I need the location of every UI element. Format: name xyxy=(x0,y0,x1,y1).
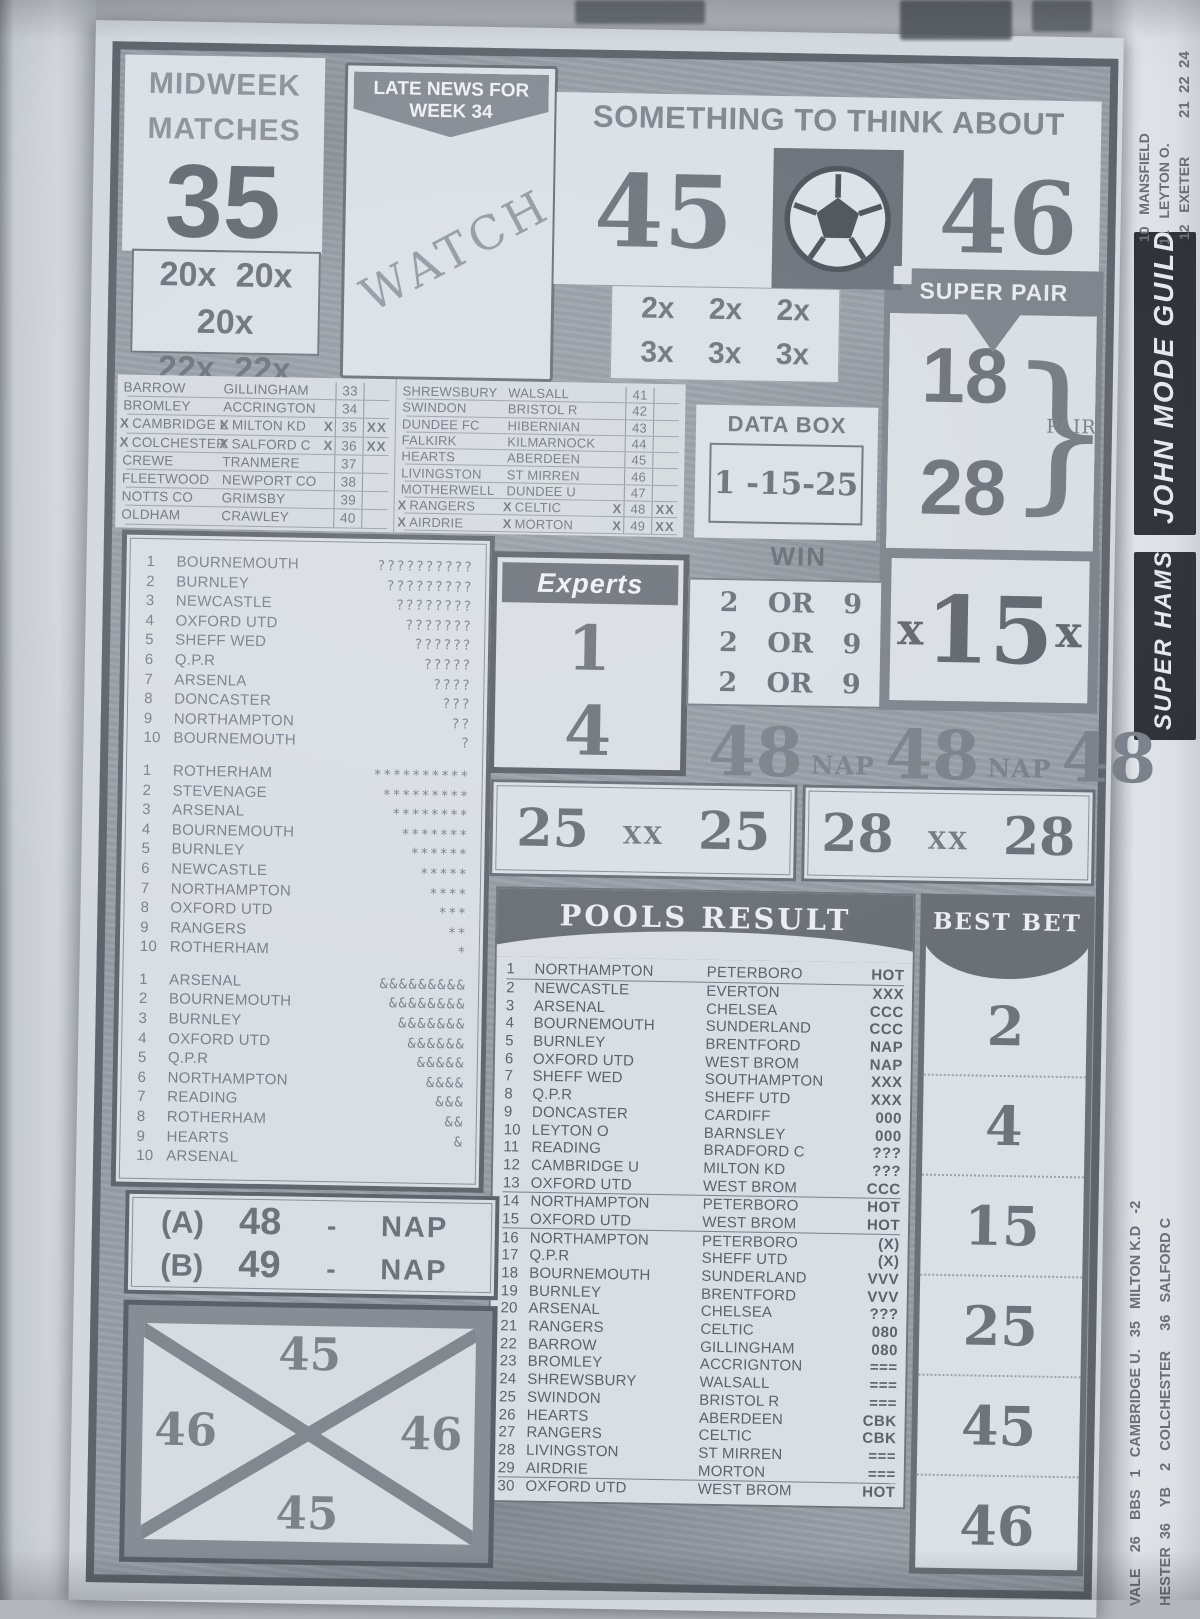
white-square-mark xyxy=(894,266,912,284)
x15-right-x: x xyxy=(1055,606,1082,657)
away-team: CRAWLEY xyxy=(221,509,320,526)
double-x-mark: XX xyxy=(364,420,389,435)
home-team: FALKIRK xyxy=(402,432,512,449)
result-code: CCC xyxy=(860,1003,904,1021)
away-team: ABERDEEN xyxy=(507,451,612,468)
home-team: SHEFF WED xyxy=(532,1068,704,1088)
away-team: CHELSEA xyxy=(706,1001,860,1021)
tip-rank: 4 xyxy=(138,1030,168,1048)
think-number-left: 45 xyxy=(553,144,773,288)
tip-team: OXFORD UTD xyxy=(168,1030,407,1051)
tail-x-mark: X xyxy=(610,501,623,516)
away-team: MORTON xyxy=(698,1462,852,1482)
tip-team: NORTHAMPTON xyxy=(174,710,452,732)
pair-xx: XX xyxy=(622,820,664,850)
home-x-mark: X xyxy=(397,514,406,529)
nap-ab-tag: NAP xyxy=(381,1211,449,1245)
home-team: HEARTS xyxy=(527,1406,699,1426)
tail-x-mark: X xyxy=(610,518,623,533)
away-team: NEWPORT CO xyxy=(222,472,321,489)
side-banner-top-text: JOHN MODE GUILD xyxy=(1148,230,1180,524)
home-team: NORTHAMPTON xyxy=(534,961,706,981)
pair-box-28: 28 XX 28 xyxy=(801,784,1096,886)
tip-marks: *** xyxy=(438,905,467,922)
multiplier-row1: 20x 20x 20x xyxy=(132,251,319,348)
tip-marks: ???? xyxy=(433,677,472,694)
cutoff-block xyxy=(1032,0,1092,32)
nap-ab-label: (A) xyxy=(161,1204,240,1241)
match-number: 34 xyxy=(335,400,364,418)
tip-team: READING xyxy=(167,1089,435,1111)
away-x-mark: X xyxy=(219,436,228,451)
away-x-mark: X xyxy=(220,418,229,433)
away-x-mark: X xyxy=(503,499,512,514)
home-team: SWINDON xyxy=(402,400,512,417)
row-number: 28 xyxy=(498,1441,526,1458)
tip-team: BURNLEY xyxy=(168,1010,398,1031)
nap-number-1: 48 xyxy=(708,712,804,794)
watch-stamp: WATCH xyxy=(351,186,544,323)
row-number: 1 xyxy=(506,961,534,978)
tip-rank: 7 xyxy=(144,671,174,689)
away-team: SHEFF UTD xyxy=(704,1089,858,1109)
match-number: 35 xyxy=(335,419,364,437)
away-team: MILTON KD xyxy=(703,1160,857,1180)
side-fixture-3: 12 EXETER xyxy=(1176,157,1192,240)
nap-ab-dash: - xyxy=(327,1210,382,1243)
away-team: WEST BROM xyxy=(698,1481,852,1501)
tip-rank: 7 xyxy=(137,1088,167,1106)
tip-team: OXFORD UTD xyxy=(170,900,438,922)
result-code: ??? xyxy=(854,1306,898,1324)
tip-marks: ????? xyxy=(424,657,472,674)
tip-team: DONCASTER xyxy=(174,691,442,713)
away-team: BRISTOL R xyxy=(508,402,613,419)
result-code: === xyxy=(853,1377,897,1395)
tips-list-question: 1 BOURNEMOUTH ?????????? 2 BURNLEY ?????… xyxy=(143,553,473,755)
pair-left: 25 xyxy=(516,797,589,859)
row-number: 23 xyxy=(500,1353,528,1370)
tip-team: ARSENAL xyxy=(172,802,392,823)
away-team: MILTON KD xyxy=(232,418,322,435)
home-team: SHREWSBURY xyxy=(527,1371,699,1391)
win-rows: 2 OR 92 OR 92 OR 9 xyxy=(688,579,892,706)
result-code: 080 xyxy=(854,1324,898,1342)
win-row: 2 OR 9 xyxy=(688,662,891,706)
tips-panel-inner: 1 BOURNEMOUTH ?????????? 2 BURNLEY ?????… xyxy=(119,538,487,1185)
home-team: Q.P.R xyxy=(529,1247,701,1267)
tip-rank: 5 xyxy=(141,840,171,858)
tip-rank: 4 xyxy=(145,612,175,630)
tip-team: BURNLEY xyxy=(171,841,410,862)
tip-marks: ********* xyxy=(383,787,470,805)
nap-ab-tag: NAP xyxy=(380,1254,448,1288)
home-team: NORTHAMPTON xyxy=(530,1193,702,1213)
tip-marks: ??????? xyxy=(405,617,473,634)
newspaper-sheet: MIDWEEK MATCHES 35 20x 20x 20x 22x 22x 2… xyxy=(68,20,1123,1618)
cross-number-bottom: 45 xyxy=(141,1484,474,1543)
tip-marks: &&&&&&& xyxy=(398,1015,466,1032)
row-number: 30 xyxy=(497,1478,525,1495)
home-x-mark: X xyxy=(120,434,129,449)
away-team: HIBERNIAN xyxy=(507,418,612,435)
experts-number-2: 4 xyxy=(494,687,681,776)
tip-team: BURNLEY xyxy=(176,573,387,594)
result-code: === xyxy=(852,1465,896,1483)
side-lower-line-1: VALE 26 BBS 1 CAMBRIDGE U. 35 MILTON K.D… xyxy=(1128,1201,1144,1606)
result-code: CBK xyxy=(852,1430,896,1448)
result-code: CCC xyxy=(857,1180,901,1198)
tip-team: ARSENAL xyxy=(169,971,380,992)
nap-ab-row: (A) 48 - NAP xyxy=(161,1199,464,1247)
tip-marks: ********** xyxy=(373,767,470,785)
away-team: GILLINGHAM xyxy=(700,1339,854,1359)
away-team: CELTIC xyxy=(700,1321,854,1341)
home-team: DUNDEE FC xyxy=(402,416,512,433)
result-code: (X) xyxy=(856,1235,900,1253)
tips-list-ampersand: 1 ARSENAL &&&&&&&&& 2 BOURNEMOUTH &&&&&&… xyxy=(136,971,466,1173)
match-number: 37 xyxy=(334,455,363,473)
result-code: === xyxy=(853,1394,897,1412)
home-team: CAMBRIDGE U xyxy=(531,1157,703,1177)
side-banner-bottom-text: SUPER HAMS xyxy=(1150,550,1178,730)
away-team: PETERBORO xyxy=(707,964,861,984)
tip-rank: 8 xyxy=(137,1108,167,1126)
pools-result-title: POOLS RESULT xyxy=(497,897,914,938)
result-code: 000 xyxy=(858,1109,902,1127)
result-code: NAP xyxy=(859,1056,903,1074)
best-bet-number: 25 xyxy=(919,1274,1083,1377)
late-news-panel: LATE NEWS FOR WEEK 34 WATCH xyxy=(340,62,558,382)
away-team: PETERBORO xyxy=(702,1232,856,1252)
home-team: OLDHAM xyxy=(121,507,225,524)
multiplier-box: 20x 20x 20x 22x 22x 22x xyxy=(130,249,321,356)
double-x-mark: XX xyxy=(652,502,677,517)
match-number: 42 xyxy=(625,404,654,420)
home-team: LIVINGSTON xyxy=(526,1442,698,1462)
fixtures-list-right: SHREWSBURY WALSALL 41 SWINDON BRISTOL R … xyxy=(394,379,686,537)
result-code: === xyxy=(853,1359,897,1377)
tip-rank: 7 xyxy=(141,879,171,897)
nap-ab-number: 48 xyxy=(239,1200,328,1245)
tail-x-mark: X xyxy=(321,438,334,453)
tip-marks: &&&&&&&&& xyxy=(379,976,466,994)
pair-xx: XX xyxy=(927,826,969,856)
row-number: 10 xyxy=(504,1121,532,1138)
row-number: 7 xyxy=(504,1068,532,1085)
tip-rank: 8 xyxy=(140,899,170,917)
row-number: 8 xyxy=(504,1085,532,1102)
experts-panel: Experts 1 4 xyxy=(488,551,690,776)
home-team: AIRDRIE xyxy=(526,1459,698,1479)
row-number: 20 xyxy=(500,1300,528,1317)
pair-right: 25 xyxy=(698,801,771,863)
tip-rank: 2 xyxy=(139,990,169,1008)
away-team: SHEFF UTD xyxy=(702,1250,856,1270)
tip-marks: ? xyxy=(461,736,471,752)
tip-marks: ????????? xyxy=(386,578,473,596)
tip-rank: 9 xyxy=(144,710,174,728)
row-number: 22 xyxy=(500,1335,528,1352)
home-team: BROMLEY xyxy=(528,1353,700,1373)
tip-team: BOURNEMOUTH xyxy=(173,730,461,752)
home-team: BARROW xyxy=(123,380,227,397)
super-pair-numbers-panel: 18 28 } PAIR xyxy=(885,313,1097,585)
data-box-panel: DATA BOX 1 -15-25 xyxy=(694,405,878,541)
nap-label-1: NAP xyxy=(811,750,876,780)
tip-marks: ******** xyxy=(392,806,469,823)
match-number: 38 xyxy=(334,473,363,491)
cross-number-left: 46 xyxy=(154,1403,218,1457)
tip-team: BOURNEMOUTH xyxy=(176,553,377,574)
tip-marks: &&&& xyxy=(426,1075,465,1092)
home-team: OXFORD UTD xyxy=(533,1051,705,1071)
small-multiplier-row2: 3x 3x 3x xyxy=(611,330,839,378)
tip-marks: &&& xyxy=(435,1095,464,1112)
small-multiplier-box: 2x 2x 2x 3x 3x 3x xyxy=(610,285,841,383)
match-number: 47 xyxy=(624,485,653,501)
away-team: ACCRIGNTON xyxy=(700,1356,854,1376)
best-bet-number: 15 xyxy=(920,1174,1084,1277)
x15-panel: x 15 x xyxy=(879,548,1100,714)
result-code: XXX xyxy=(858,1074,902,1092)
tip-marks: ?? xyxy=(451,716,471,732)
tip-rank: 9 xyxy=(136,1128,166,1146)
away-team: MORTON xyxy=(514,516,610,533)
home-team: BARROW xyxy=(528,1336,700,1356)
tip-rank: 3 xyxy=(138,1010,168,1028)
home-x-mark: X xyxy=(397,498,406,513)
tip-team: NORTHAMPTON xyxy=(167,1069,426,1091)
page-frame: MIDWEEK MATCHES 35 20x 20x 20x 22x 22x 2… xyxy=(86,41,1119,1599)
away-team: SOUTHAMPTON xyxy=(705,1071,859,1091)
home-team: NOTTS CO xyxy=(122,489,226,506)
away-x-mark: X xyxy=(503,516,512,531)
home-team: BURNLEY xyxy=(529,1282,701,1302)
result-code: HOT xyxy=(860,967,904,985)
home-team: HEARTS xyxy=(401,449,511,466)
away-team: KILMARNOCK xyxy=(507,434,612,451)
pools-result-panel: POOLS RESULT 1 NORTHAMPTON PETERBORO HOT… xyxy=(485,886,916,1509)
tip-team: OXFORD UTD xyxy=(175,612,405,633)
away-team: BRADFORD C xyxy=(703,1142,857,1162)
away-team: GILLINGHAM xyxy=(223,381,322,398)
late-news-line1: LATE NEWS FOR xyxy=(354,78,549,103)
tip-rank: 5 xyxy=(145,631,175,649)
away-team: ST MIRREN xyxy=(507,467,612,484)
away-team: WALSALL xyxy=(699,1374,853,1394)
home-team: LEYTON O xyxy=(532,1121,704,1141)
tip-team: NEWCASTLE xyxy=(176,593,396,614)
late-news-line2: WEEK 34 xyxy=(353,100,548,125)
tip-team: NEWCASTLE xyxy=(171,860,420,881)
away-team: EVERTON xyxy=(706,983,860,1003)
tip-marks: && xyxy=(444,1114,464,1130)
tip-marks: ?????????? xyxy=(377,558,474,576)
home-team: Q.P.R xyxy=(532,1086,704,1106)
match-number: 49 xyxy=(623,518,652,534)
nap-ab-inner: (A) 48 - NAP (B) 49 - NAP xyxy=(131,1197,493,1293)
row-number: 26 xyxy=(499,1406,527,1423)
best-bet-number: 4 xyxy=(922,1074,1086,1177)
tip-rank: 9 xyxy=(140,919,170,937)
tip-rank: 3 xyxy=(142,801,172,819)
row-number: 5 xyxy=(505,1032,533,1049)
row-number: 13 xyxy=(503,1174,531,1191)
away-team: SUNDERLAND xyxy=(701,1268,855,1288)
home-team: ARSENAL xyxy=(528,1300,700,1320)
row-number: 3 xyxy=(506,997,534,1014)
super-pair-title: SUPER PAIR xyxy=(884,268,1104,308)
tip-team: SHEFF WED xyxy=(175,632,414,653)
row-number: 11 xyxy=(503,1139,531,1156)
tip-team: ROTHERHAM xyxy=(170,939,458,961)
match-number: 39 xyxy=(334,491,363,509)
result-code: HOT xyxy=(851,1484,895,1502)
row-number: 9 xyxy=(504,1103,532,1120)
match-number: 45 xyxy=(624,452,653,468)
fixture-row: X AIRDRIE X MORTON X 49 XX xyxy=(404,514,677,535)
tip-rank: 5 xyxy=(138,1049,168,1067)
tips-list-star: 1 ROTHERHAM ********** 2 STEVENAGE *****… xyxy=(140,762,470,964)
row-number: 25 xyxy=(499,1388,527,1405)
away-team: BARNSLEY xyxy=(704,1124,858,1144)
ball-backing-block xyxy=(771,148,903,290)
experts-title: Experts xyxy=(502,562,679,605)
side-row-numbers: 21 22 24 xyxy=(1176,51,1193,118)
tip-marks: ???????? xyxy=(396,598,473,615)
nap-ab-box: (A) 48 - NAP (B) 49 - NAP xyxy=(124,1190,500,1301)
tip-marks: ** xyxy=(448,925,468,941)
result-code: XXX xyxy=(858,1092,902,1110)
match-number: 43 xyxy=(625,420,654,436)
away-team: CELTIC xyxy=(698,1427,852,1447)
nap-label-2: NAP xyxy=(987,753,1052,783)
data-box-value: 1 -15-25 xyxy=(708,443,863,526)
row-number: 4 xyxy=(505,1015,533,1032)
pair-box-28-inner: 28 XX 28 xyxy=(807,791,1089,881)
midweek-title-line1: MIDWEEK xyxy=(125,55,326,103)
best-bet-number: 45 xyxy=(917,1374,1081,1477)
home-team: FLEETWOOD xyxy=(122,471,226,488)
tip-marks: ?????? xyxy=(414,637,472,654)
tip-team: STEVENAGE xyxy=(172,782,383,803)
pools-result-header: POOLS RESULT xyxy=(497,888,914,963)
home-team: COLCHESTER xyxy=(132,434,227,451)
tip-team: Q.P.R xyxy=(175,651,424,672)
tip-rank: 2 xyxy=(142,781,172,799)
small-multiplier-row1: 2x 2x 2x xyxy=(612,286,840,334)
match-number: 40 xyxy=(333,510,362,528)
tip-rank: 1 xyxy=(143,762,173,780)
row-number: 12 xyxy=(503,1156,531,1173)
tip-rank: 6 xyxy=(141,860,171,878)
result-code: HOT xyxy=(856,1216,900,1234)
tip-rank: 3 xyxy=(146,592,176,610)
win-panel: 2 OR 92 OR 92 OR 9 xyxy=(686,577,894,709)
result-code: VVV xyxy=(855,1270,899,1288)
away-team: WALSALL xyxy=(508,385,613,402)
best-bet-number: 46 xyxy=(915,1474,1079,1577)
tip-marks: &&&&&& xyxy=(407,1035,465,1052)
row-number: 6 xyxy=(505,1050,533,1067)
away-team: ABERDEEN xyxy=(699,1409,853,1429)
row-number: 2 xyxy=(506,979,534,996)
result-code: (X) xyxy=(855,1253,899,1271)
row-number: 14 xyxy=(502,1193,530,1210)
tip-marks: **** xyxy=(429,885,468,902)
away-team: BRENTFORD xyxy=(701,1285,855,1305)
result-code: CBK xyxy=(853,1412,897,1430)
away-team: ACCRINGTON xyxy=(223,400,322,417)
home-team: DONCASTER xyxy=(532,1104,704,1124)
tip-marks: ******* xyxy=(401,826,469,843)
tip-team: ROTHERHAM xyxy=(167,1108,445,1130)
away-team: DUNDEE U xyxy=(506,483,611,500)
tips-panel: 1 BOURNEMOUTH ?????????? 2 BURNLEY ?????… xyxy=(111,530,495,1193)
match-number: 36 xyxy=(334,437,363,455)
home-team: SHREWSBURY xyxy=(402,384,512,401)
tip-rank: 1 xyxy=(146,553,176,571)
side-lower-line-2: HESTER 36 YB 2 COLCHESTER 36 SALFORD C xyxy=(1158,1218,1174,1606)
match-number: 41 xyxy=(625,387,654,403)
result-code: 080 xyxy=(854,1341,898,1359)
home-team: AIRDRIE xyxy=(409,514,510,531)
tip-rank: 6 xyxy=(145,651,175,669)
tip-team: NORTHAMPTON xyxy=(171,880,430,902)
nap-ab-dash: - xyxy=(326,1254,381,1287)
row-number: 15 xyxy=(502,1210,530,1227)
pools-result-rows: 1 NORTHAMPTON PETERBORO HOT 2 NEWCASTLE … xyxy=(497,960,904,1501)
pair-right: 28 xyxy=(1002,806,1075,868)
home-x-mark: X xyxy=(120,416,129,431)
tip-team: ROTHERHAM xyxy=(173,762,374,783)
cross-number-right: 46 xyxy=(399,1407,463,1461)
home-team: ARSENAL xyxy=(534,998,706,1018)
side-fixture-1: 10 MANSFIELD xyxy=(1136,133,1152,242)
home-team: READING xyxy=(531,1139,703,1159)
tip-team: Q.P.R xyxy=(168,1050,417,1071)
best-bet-panel: BEST BET 2415254546 xyxy=(909,894,1095,1577)
away-team: WEST BROM xyxy=(702,1214,856,1234)
super-pair-top-number: 18 xyxy=(914,329,1016,422)
tip-rank: 4 xyxy=(142,821,172,839)
away-team: SUNDERLAND xyxy=(706,1018,860,1038)
row-number: 27 xyxy=(498,1423,526,1440)
match-number: 46 xyxy=(624,469,653,485)
result-code: XXX xyxy=(860,986,904,1004)
result-code: CCC xyxy=(859,1021,903,1039)
home-team: NORTHAMPTON xyxy=(530,1229,702,1249)
result-code: 000 xyxy=(857,1127,901,1145)
tip-marks: &&&&& xyxy=(417,1055,465,1072)
away-team: CHELSEA xyxy=(701,1303,855,1323)
result-code: NAP xyxy=(859,1039,903,1057)
row-number: 18 xyxy=(501,1264,529,1281)
away-team: BRENTFORD xyxy=(705,1036,859,1056)
home-team: MOTHERWELL xyxy=(401,481,511,498)
newspaper-photo: { "colors": { "paper": "#d6dbe2", "panel… xyxy=(0,0,1200,1600)
away-team: WEST BROM xyxy=(703,1177,857,1197)
tip-team: BOURNEMOUTH xyxy=(169,991,389,1012)
x15-number: 15 xyxy=(925,576,1055,686)
pair-left: 28 xyxy=(821,803,894,865)
away-team: GRIMSBY xyxy=(222,490,321,507)
away-team: PETERBORO xyxy=(702,1196,856,1216)
home-team: BOURNEMOUTH xyxy=(529,1265,701,1285)
home-team: LIVINGSTON xyxy=(401,465,511,482)
result-code: ??? xyxy=(857,1162,901,1180)
